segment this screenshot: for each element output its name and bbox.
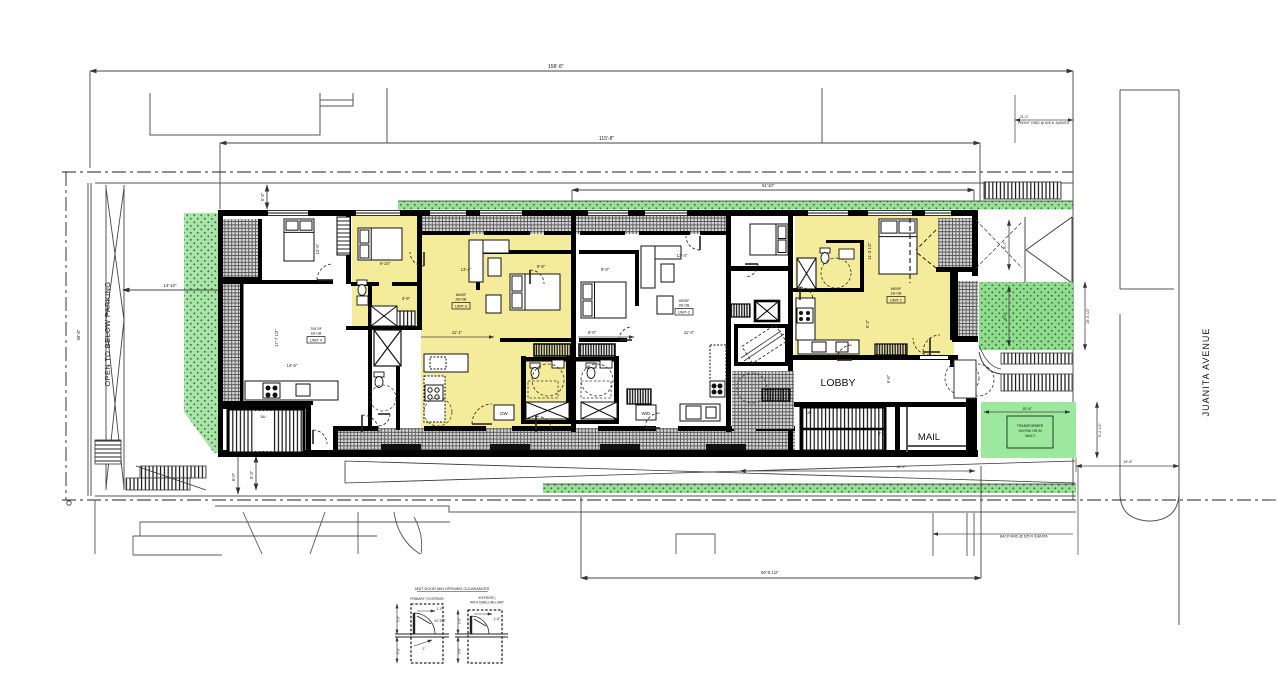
- svg-text:11'-3 1/2": 11'-3 1/2": [867, 242, 872, 260]
- svg-text:BACKYARD @ 625 N JUANITA: BACKYARD @ 625 N JUANITA: [1000, 535, 1048, 539]
- svg-text:158'-8": 158'-8": [548, 64, 564, 70]
- svg-text:17'-7 1/2": 17'-7 1/2": [274, 329, 279, 347]
- svg-text:21'-0": 21'-0": [1020, 115, 1029, 119]
- svg-text:1B+1B: 1B+1B: [311, 332, 322, 336]
- svg-text:15'-8": 15'-8": [1022, 407, 1032, 411]
- svg-text:WITH DWELLING UNIT: WITH DWELLING UNIT: [470, 601, 504, 605]
- svg-text:TRANSFORMER: TRANSFORMER: [1017, 424, 1044, 428]
- svg-text:1'-6": 1'-6": [494, 617, 500, 621]
- svg-text:9'-2": 9'-2": [865, 319, 870, 328]
- svg-text:W/D: W/D: [642, 411, 651, 416]
- svg-text:61'10": 61'10": [762, 183, 775, 188]
- svg-text:11'-1": 11'-1": [452, 330, 463, 335]
- svg-text:1'-0": 1'-0": [437, 607, 443, 611]
- svg-text:9'-2 1/2": 9'-2 1/2": [1098, 422, 1102, 437]
- svg-text:OPEN TO BELOW PARKING: OPEN TO BELOW PARKING: [103, 282, 112, 387]
- svg-text:19'-6": 19'-6": [1123, 460, 1133, 464]
- svg-text:FRONT YARD @ 625 N JUANITA: FRONT YARD @ 625 N JUANITA: [1018, 121, 1070, 125]
- svg-text:ON PAD OR IN: ON PAD OR IN: [1018, 429, 1042, 433]
- svg-text:14'-10": 14'-10": [164, 283, 178, 288]
- svg-text:660SF: 660SF: [891, 287, 902, 291]
- svg-text:5U: 5U: [260, 414, 265, 419]
- svg-text:VAULT: VAULT: [1025, 434, 1035, 438]
- svg-text:18'-5": 18'-5": [896, 465, 906, 469]
- svg-text:3'-6": 3'-6": [458, 648, 462, 654]
- svg-text:8'-0": 8'-0": [1003, 312, 1007, 320]
- svg-text:4'-0": 4'-0": [397, 648, 401, 654]
- svg-text:MAIL: MAIL: [918, 432, 940, 443]
- svg-text:3'-6": 3'-6": [878, 431, 887, 436]
- svg-text:660SF: 660SF: [456, 293, 467, 297]
- svg-text:2B+2B: 2B+2B: [456, 298, 467, 302]
- svg-text:INTERIOR |: INTERIOR |: [479, 596, 496, 600]
- svg-text:5'-0": 5'-0": [397, 616, 401, 622]
- svg-text:2": 2": [423, 647, 426, 651]
- svg-text:UNIT-3: UNIT-3: [455, 305, 467, 309]
- svg-text:JUANITA AVENUE: JUANITA AVENUE: [1201, 328, 1211, 417]
- svg-text:24" EXT: 24" EXT: [434, 619, 446, 623]
- svg-text:58'-8": 58'-8": [76, 329, 81, 340]
- svg-text:3'-6": 3'-6": [402, 296, 411, 301]
- svg-text:705 SF: 705 SF: [310, 327, 322, 331]
- svg-text:19'-5 1/2": 19'-5 1/2": [1086, 307, 1090, 324]
- svg-text:893SF: 893SF: [679, 299, 690, 303]
- svg-text:DW: DW: [500, 411, 508, 416]
- svg-text:9'-10": 9'-10": [380, 261, 391, 266]
- svg-text:115'-8": 115'-8": [599, 136, 614, 142]
- svg-text:9'-0": 9'-0": [601, 267, 610, 272]
- svg-text:9'-8": 9'-8": [537, 264, 546, 269]
- svg-text:UNIT-1: UNIT-1: [890, 299, 902, 303]
- svg-text:1B+1B: 1B+1B: [891, 292, 902, 296]
- svg-text:5'-3": 5'-3": [249, 470, 254, 479]
- svg-text:UNIT-2: UNIT-2: [678, 311, 690, 315]
- svg-text:60'-5 1/2": 60'-5 1/2": [761, 570, 779, 575]
- svg-text:13'-4": 13'-4": [677, 253, 688, 258]
- svg-text:UNIT 4: UNIT 4: [310, 339, 322, 343]
- svg-text:2B+2B: 2B+2B: [679, 304, 690, 308]
- svg-text:LOBBY: LOBBY: [820, 377, 855, 389]
- svg-text:PRIMARY | EXTERIOR: PRIMARY | EXTERIOR: [410, 597, 444, 601]
- svg-text:3'-0": 3'-0": [458, 618, 462, 624]
- svg-text:11'-4": 11'-4": [684, 330, 695, 335]
- svg-text:6'-0": 6'-0": [231, 472, 236, 481]
- svg-text:8'-7": 8'-7": [1003, 241, 1007, 249]
- svg-text:6'-0": 6'-0": [588, 330, 597, 335]
- svg-text:UP: UP: [806, 410, 812, 415]
- svg-text:10'-0": 10'-0": [315, 243, 320, 254]
- svg-text:6'-6": 6'-6": [886, 374, 891, 383]
- svg-text:5'-4": 5'-4": [260, 192, 265, 201]
- svg-text:UNIT DOOR MIN OPENING CLEARANC: UNIT DOOR MIN OPENING CLEARANCES: [415, 587, 490, 591]
- svg-text:13'-4": 13'-4": [461, 267, 472, 272]
- svg-text:14'-6": 14'-6": [287, 363, 298, 368]
